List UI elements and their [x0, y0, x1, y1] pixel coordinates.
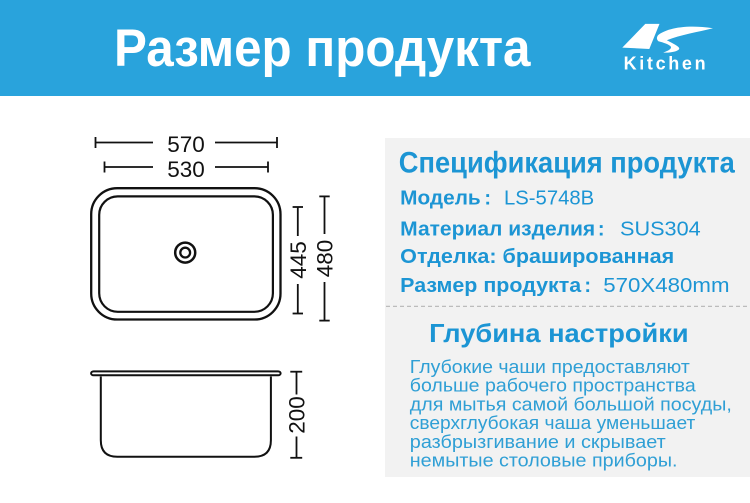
svg-text:530: 530	[167, 157, 205, 182]
svg-text:Глубокие чаши предоставляют: Глубокие чаши предоставляют	[410, 357, 691, 377]
svg-text:Материал изделия: Материал изделия	[400, 218, 595, 240]
svg-text::: :	[584, 275, 591, 297]
svg-text:разбрызгивание и скрывает: разбрызгивание и скрывает	[410, 432, 667, 452]
svg-text:больше рабочего пространства: больше рабочего пространства	[410, 376, 697, 396]
svg-text:480: 480	[313, 240, 338, 278]
svg-text:сверхглубокая чаша уменьшает: сверхглубокая чаша уменьшает	[410, 413, 696, 433]
svg-text:SUS304: SUS304	[620, 217, 701, 240]
svg-text:Отделка: брашированная: Отделка: брашированная	[400, 246, 674, 268]
svg-text:Спецификация продукта: Спецификация продукта	[399, 147, 735, 180]
svg-text:Kitchen: Kitchen	[624, 53, 706, 73]
svg-text:570: 570	[167, 132, 205, 157]
svg-text:немытые столовые приборы.: немытые столовые приборы.	[410, 451, 678, 471]
svg-text:445: 445	[286, 241, 311, 279]
svg-text::: :	[598, 218, 605, 240]
svg-text:570X480mm: 570X480mm	[603, 274, 729, 297]
svg-text:Модель: Модель	[400, 187, 481, 209]
svg-text:Размер продукта: Размер продукта	[400, 275, 582, 297]
svg-text::: :	[484, 187, 491, 209]
svg-text:200: 200	[285, 396, 310, 434]
svg-text:LS-5748B: LS-5748B	[504, 186, 594, 209]
svg-text:Глубина настройки: Глубина настройки	[429, 318, 688, 348]
svg-text:для мытья самой большой посуды: для мытья самой большой посуды,	[410, 394, 732, 414]
